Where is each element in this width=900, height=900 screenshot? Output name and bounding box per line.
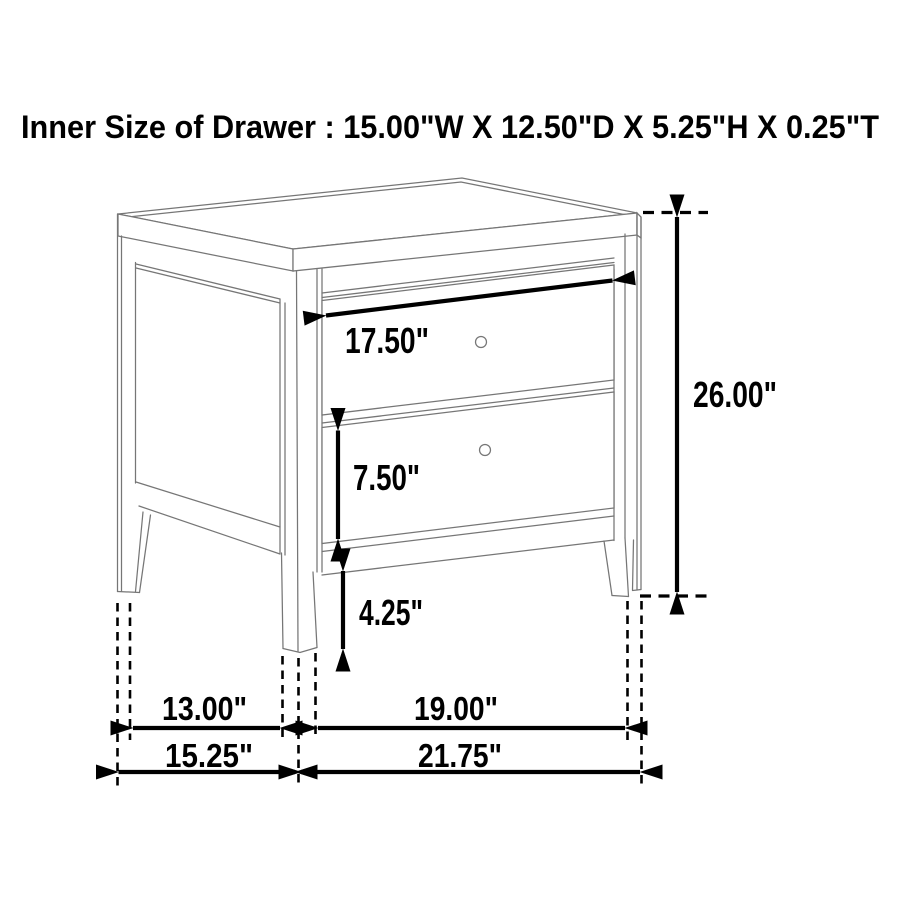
dim-overall-height: 26.00" — [640, 213, 777, 597]
top-slab — [118, 178, 641, 271]
front-left-leg-right-edge — [313, 572, 317, 648]
front-left-leg-left-edge — [282, 553, 284, 649]
back-left-foot — [118, 592, 140, 593]
bottom-drawer-knob[interactable] — [480, 445, 491, 456]
side-rail-top-b — [136, 268, 280, 303]
front-right-foot — [612, 596, 629, 597]
diagram-canvas: Inner Size of Drawer : 15.00"W X 12.50"D… — [0, 0, 900, 900]
furniture-dimension-diagram: Inner Size of Drawer : 15.00"W X 12.50"D… — [0, 0, 900, 900]
left-side-panel — [118, 214, 286, 592]
front-right-leg-left-edge — [604, 541, 612, 596]
dim-front-span-inner: 19.00" — [318, 690, 625, 728]
top-drawer-knob[interactable] — [476, 337, 487, 348]
side-depth-outer-label: 15.25" — [165, 737, 253, 774]
dim-side-span-inner: 13.00" — [133, 690, 280, 728]
side-rail-bottom-a — [136, 482, 280, 527]
front-width-outer-label: 21.75" — [418, 737, 502, 774]
front-span-inner-label: 19.00" — [414, 690, 498, 727]
dim-side-depth-outer: 15.25" — [119, 737, 296, 774]
front-corner-edge — [297, 271, 299, 651]
bottom-rail-edge — [322, 540, 614, 575]
side-rail-top-a — [136, 264, 280, 299]
side-span-inner-label: 13.00" — [162, 690, 247, 727]
dim-front-width-outer: 21.75" — [301, 737, 640, 774]
nightstand-drawing — [118, 178, 642, 653]
leg-height-label: 4.25" — [359, 592, 423, 633]
drawer-width-label: 17.50" — [345, 320, 429, 361]
back-right-foot — [633, 590, 642, 591]
drawer-height-label: 7.50" — [353, 457, 420, 498]
front-left-foot — [283, 648, 317, 653]
diagram-title: Inner Size of Drawer : 15.00"W X 12.50"D… — [21, 109, 879, 145]
overall-height-label: 26.00" — [693, 374, 777, 415]
front-right-leg-right-edge — [625, 538, 629, 597]
side-rail-bottom-b — [139, 506, 280, 554]
dim-leg-height: 4.25" — [343, 571, 423, 649]
back-right-leg-taper — [633, 540, 634, 590]
drawers — [322, 265, 614, 544]
